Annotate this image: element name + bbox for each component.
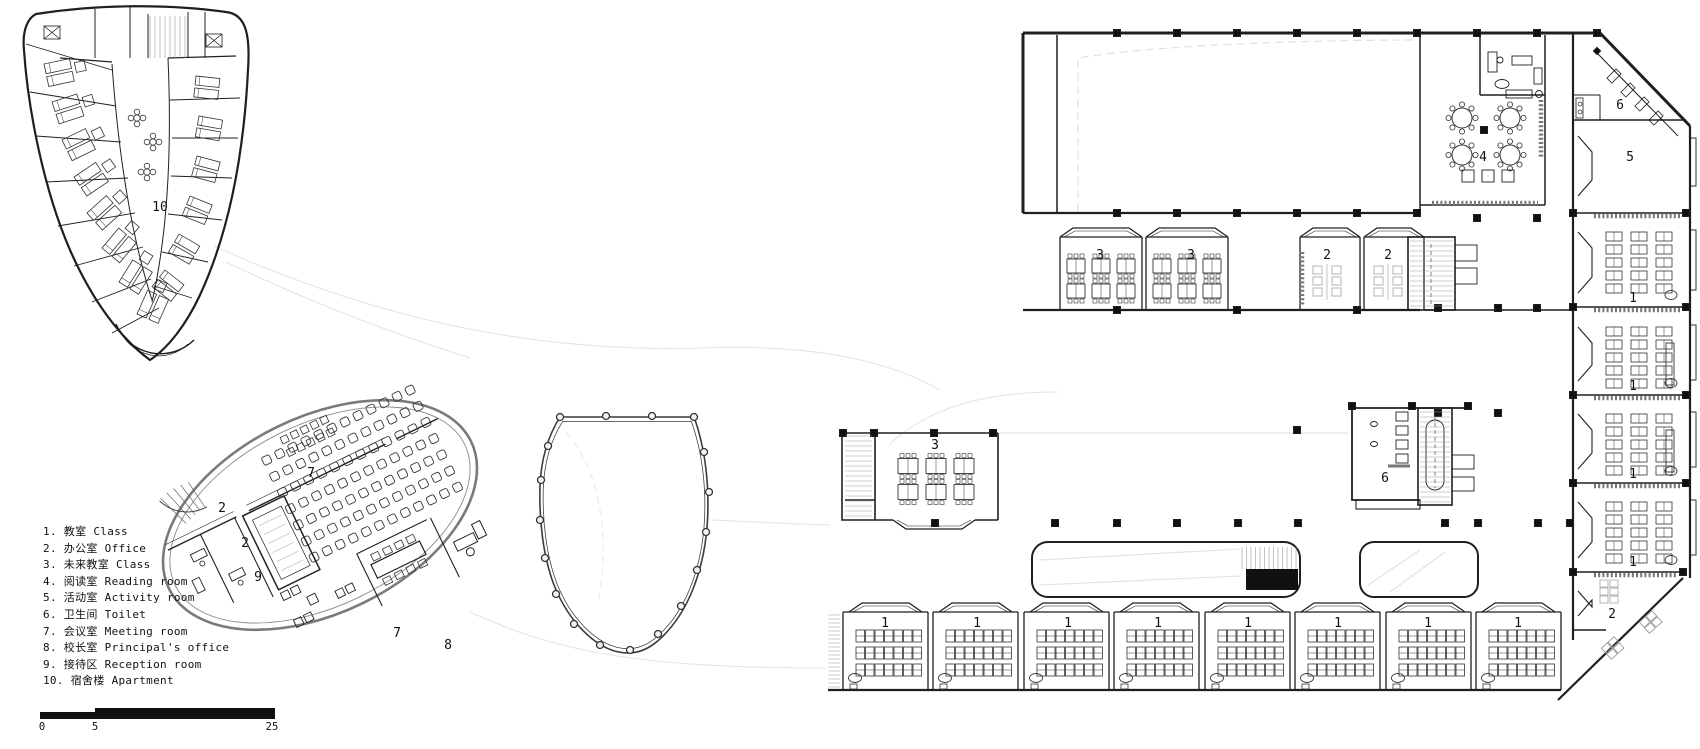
column bbox=[1567, 520, 1574, 527]
column bbox=[1354, 210, 1361, 217]
room-number-label: 3 bbox=[1096, 248, 1104, 263]
legend-number: 8 bbox=[43, 641, 50, 654]
room-number-label: 2 bbox=[241, 536, 249, 551]
column bbox=[1174, 210, 1181, 217]
legend-zh-label: 教室 bbox=[64, 525, 87, 538]
legend-zh-label: 未来教室 bbox=[64, 558, 109, 571]
stair-treads bbox=[1410, 241, 1453, 306]
column bbox=[1534, 305, 1541, 312]
legend-en-label: Reading room bbox=[105, 575, 188, 588]
room-number-label: 1 bbox=[1424, 616, 1432, 631]
room-number-label: 3 bbox=[1187, 248, 1195, 263]
legend-item: 1. 教室 Class bbox=[43, 524, 229, 541]
column bbox=[1174, 520, 1181, 527]
room-number-label: 3 bbox=[931, 438, 939, 453]
column bbox=[1495, 410, 1502, 417]
column bbox=[1680, 569, 1687, 576]
legend-number: 1 bbox=[43, 525, 50, 538]
column bbox=[1683, 392, 1690, 399]
column bbox=[1570, 210, 1577, 217]
column bbox=[1570, 392, 1577, 399]
legend-en-label: Activity room bbox=[105, 591, 195, 604]
column bbox=[1234, 307, 1241, 314]
elevator-icon bbox=[44, 26, 222, 47]
dormitory-building bbox=[24, 6, 249, 360]
legend-en-label: Reception room bbox=[105, 658, 202, 671]
column bbox=[1474, 215, 1481, 222]
mullion-node bbox=[701, 449, 708, 456]
mullion-node bbox=[597, 642, 604, 649]
room-number-label: 1 bbox=[1334, 616, 1342, 631]
column bbox=[1114, 30, 1121, 37]
column bbox=[1465, 403, 1472, 410]
legend-zh-label: 活动室 bbox=[64, 591, 98, 604]
column bbox=[1235, 520, 1242, 527]
mullion-node bbox=[538, 477, 545, 484]
stair-treads bbox=[845, 436, 872, 516]
column bbox=[1442, 520, 1449, 527]
column bbox=[1495, 305, 1502, 312]
column bbox=[1475, 520, 1482, 527]
legend-number: 4 bbox=[43, 575, 50, 588]
column bbox=[1534, 215, 1541, 222]
column bbox=[1234, 30, 1241, 37]
toilet-stalls bbox=[1371, 412, 1411, 466]
column bbox=[1349, 403, 1356, 410]
legend-en-label: Toilet bbox=[105, 608, 147, 621]
column bbox=[1570, 480, 1577, 487]
column bbox=[1294, 210, 1301, 217]
stair-treads bbox=[1242, 547, 1296, 569]
legend-zh-label: 办公室 bbox=[64, 542, 98, 555]
curtain-wall-mullions bbox=[537, 413, 713, 654]
legend-number: 5 bbox=[43, 591, 50, 604]
legend-number: 2 bbox=[43, 542, 50, 555]
column bbox=[1481, 127, 1488, 134]
legend-zh-label: 卫生间 bbox=[64, 608, 98, 621]
mullion-node bbox=[691, 414, 698, 421]
room-number-label: 10 bbox=[152, 200, 168, 215]
column bbox=[1594, 30, 1601, 37]
column bbox=[1683, 210, 1690, 217]
legend-zh-label: 会议室 bbox=[64, 625, 98, 638]
mullion-node bbox=[603, 413, 610, 420]
legend: 1. 教室 Class2. 办公室 Office3. 未来教室 Class4. … bbox=[43, 524, 229, 690]
room-number-label: 1 bbox=[1514, 616, 1522, 631]
mullion-node bbox=[545, 443, 552, 450]
room-number-label: 1 bbox=[1154, 616, 1162, 631]
legend-number: 9 bbox=[43, 658, 50, 671]
room-number-label: 1 bbox=[1629, 467, 1637, 482]
column bbox=[1052, 520, 1059, 527]
stair-treads bbox=[828, 615, 840, 687]
legend-zh-label: 接待区 bbox=[64, 658, 98, 671]
room-number-label: 1 bbox=[1629, 379, 1637, 394]
legend-item: 3. 未来教室 Class bbox=[43, 557, 229, 574]
mullion-node bbox=[694, 567, 701, 574]
column bbox=[1683, 304, 1690, 311]
room-number-label: 1 bbox=[1064, 616, 1072, 631]
legend-zh-label: 阅读室 bbox=[64, 575, 98, 588]
legend-number: 10 bbox=[43, 674, 57, 687]
room-number-label: 7 bbox=[307, 466, 315, 481]
mullion-node bbox=[557, 414, 564, 421]
window-hatch bbox=[1302, 100, 1680, 575]
room-number-label: 2 bbox=[1384, 248, 1392, 263]
legend-en-label: Class bbox=[116, 558, 151, 571]
room-number-label: 9 bbox=[254, 570, 262, 585]
floor-plan-canvas: 107229783322465111123611111111 bbox=[0, 0, 1700, 749]
legend-en-label: Principal's office bbox=[105, 641, 230, 654]
room-number-label: 7 bbox=[393, 626, 401, 641]
column bbox=[1354, 30, 1361, 37]
column bbox=[1435, 410, 1442, 417]
mullion-node bbox=[627, 647, 634, 654]
mullion-node bbox=[703, 529, 710, 536]
column bbox=[1114, 210, 1121, 217]
legend-item: 4. 阅读室 Reading room bbox=[43, 574, 229, 591]
column bbox=[1409, 403, 1416, 410]
legend-en-label: Office bbox=[105, 542, 147, 555]
column bbox=[932, 520, 939, 527]
legend-en-label: Meeting room bbox=[105, 625, 188, 638]
room-number-label: 6 bbox=[1616, 98, 1624, 113]
mullion-node bbox=[678, 603, 685, 610]
room-number-label: 2 bbox=[1323, 248, 1331, 263]
legend-item: 9. 接待区 Reception room bbox=[43, 657, 229, 674]
column bbox=[1295, 520, 1302, 527]
column bbox=[1354, 307, 1361, 314]
oval-pavilion bbox=[537, 413, 713, 654]
column bbox=[1174, 30, 1181, 37]
stair-treads bbox=[150, 16, 185, 58]
mullion-node bbox=[706, 489, 713, 496]
column bbox=[1114, 307, 1121, 314]
column bbox=[1414, 30, 1421, 37]
mullion-node bbox=[537, 517, 544, 524]
column bbox=[1570, 304, 1577, 311]
room-number-label: 2 bbox=[218, 501, 226, 516]
legend-number: 7 bbox=[43, 625, 50, 638]
legend-item: 6. 卫生间 Toilet bbox=[43, 607, 229, 624]
legend-zh-label: 校长室 bbox=[64, 641, 98, 654]
mullion-node bbox=[542, 555, 549, 562]
legend-en-label: Class bbox=[93, 525, 128, 538]
column bbox=[1294, 427, 1301, 434]
office-corner bbox=[1488, 52, 1543, 98]
mullion-node bbox=[655, 631, 662, 638]
reception-seating bbox=[280, 563, 359, 627]
floor-plan-page: 107229783322465111123611111111 1. 教室 Cla… bbox=[0, 0, 1700, 749]
room-number-label: 4 bbox=[1479, 150, 1487, 165]
legend-number: 6 bbox=[43, 608, 50, 621]
column bbox=[931, 430, 938, 437]
legend-item: 8. 校长室 Principal's office bbox=[43, 640, 229, 657]
column bbox=[840, 430, 847, 437]
column bbox=[871, 430, 878, 437]
column bbox=[1414, 210, 1421, 217]
legend-en-label: Apartment bbox=[112, 674, 174, 687]
room-number-label: 1 bbox=[1244, 616, 1252, 631]
courtyard-stair-landing bbox=[1246, 569, 1298, 590]
mullion-node bbox=[571, 621, 578, 628]
room-number-label: 1 bbox=[973, 616, 981, 631]
column bbox=[1294, 30, 1301, 37]
legend-item: 2. 办公室 Office bbox=[43, 541, 229, 558]
room-number-label: 2 bbox=[1608, 607, 1616, 622]
room-number-label: 1 bbox=[1629, 555, 1637, 570]
mullion-node bbox=[649, 413, 656, 420]
room-number-label: 5 bbox=[1626, 150, 1634, 165]
column bbox=[1570, 569, 1577, 576]
legend-number: 3 bbox=[43, 558, 50, 571]
column bbox=[1435, 305, 1442, 312]
room-number-label: 1 bbox=[881, 616, 889, 631]
legend-item: 10. 宿舍楼 Apartment bbox=[43, 673, 229, 690]
column bbox=[1535, 520, 1542, 527]
legend-item: 5. 活动室 Activity room bbox=[43, 590, 229, 607]
legend-item: 7. 会议室 Meeting room bbox=[43, 624, 229, 641]
column bbox=[1234, 210, 1241, 217]
mullion-node bbox=[553, 591, 560, 598]
column bbox=[990, 430, 997, 437]
column bbox=[1114, 520, 1121, 527]
legend-zh-label: 宿舍楼 bbox=[71, 674, 105, 687]
column bbox=[1474, 30, 1481, 37]
column bbox=[1683, 480, 1690, 487]
room-number-label: 8 bbox=[444, 638, 452, 653]
teaching-building bbox=[44, 16, 1696, 700]
column bbox=[1534, 30, 1541, 37]
meeting-table bbox=[371, 541, 426, 578]
room-number-label: 1 bbox=[1629, 291, 1637, 306]
room-number-label: 6 bbox=[1381, 471, 1389, 486]
